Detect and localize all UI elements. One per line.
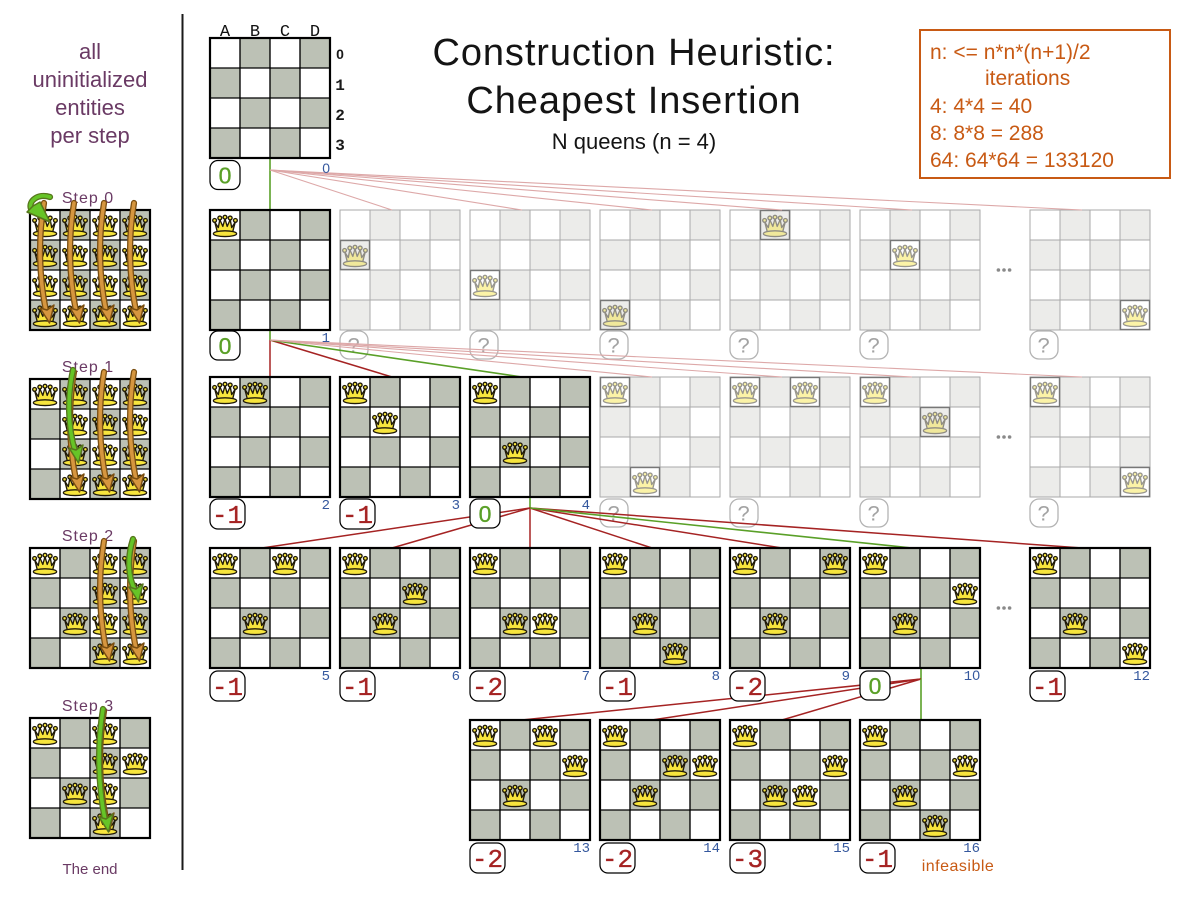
svg-text:entities: entities [55, 95, 125, 120]
svg-text:N queens (n = 4): N queens (n = 4) [552, 129, 716, 154]
svg-text:0: 0 [479, 501, 492, 527]
svg-text:infeasible: infeasible [922, 858, 995, 875]
svg-text:-1: -1 [342, 501, 373, 531]
svg-text:3: 3 [452, 498, 460, 514]
svg-text:iterations: iterations [985, 67, 1070, 90]
svg-text:-1: -1 [1032, 673, 1063, 703]
svg-text:?: ? [737, 335, 750, 360]
svg-text:?: ? [347, 335, 360, 360]
svg-text:?: ? [1037, 335, 1050, 360]
svg-text:-1: -1 [212, 673, 243, 703]
svg-text:8: 8 [712, 669, 720, 685]
svg-text:16: 16 [963, 841, 980, 857]
svg-text:0: 0 [869, 673, 882, 699]
svg-text:uninitialized: uninitialized [33, 67, 148, 92]
svg-text:per step: per step [50, 123, 130, 148]
svg-text:B: B [250, 23, 260, 42]
svg-text:-2: -2 [472, 845, 503, 875]
svg-text:4: 4*4 = 40: 4: 4*4 = 40 [930, 95, 1032, 118]
svg-text:4: 4 [582, 498, 590, 514]
svg-text:2: 2 [322, 498, 330, 514]
svg-text:15: 15 [833, 841, 850, 857]
svg-text:64: 64*64 = 133120: 64: 64*64 = 133120 [930, 149, 1114, 172]
svg-text:-3: -3 [732, 845, 763, 875]
svg-text:?: ? [867, 335, 880, 360]
svg-text:5: 5 [322, 669, 330, 685]
svg-text:0: 0 [219, 333, 232, 359]
svg-text:-1: -1 [342, 673, 373, 703]
svg-text:-1: -1 [862, 845, 893, 875]
svg-text:12: 12 [1133, 669, 1150, 685]
svg-text:-1: -1 [212, 501, 243, 531]
svg-text:Construction Heuristic:: Construction Heuristic: [433, 32, 836, 74]
svg-text:-2: -2 [602, 845, 633, 875]
svg-text:0: 0 [322, 160, 330, 176]
svg-text:0: 0 [336, 46, 344, 62]
svg-text:1: 1 [335, 77, 345, 95]
svg-text:?: ? [1037, 503, 1050, 528]
svg-text:9: 9 [842, 669, 850, 685]
svg-text:-2: -2 [472, 673, 503, 703]
svg-text:C: C [280, 23, 290, 42]
svg-text:13: 13 [573, 841, 590, 857]
svg-text:Cheapest Insertion: Cheapest Insertion [466, 80, 801, 122]
svg-text:D: D [310, 23, 320, 42]
svg-text:6: 6 [452, 669, 460, 685]
svg-text:0: 0 [219, 163, 232, 189]
svg-text:2: 2 [335, 107, 345, 125]
svg-text:The end: The end [62, 861, 117, 878]
svg-text:?: ? [867, 503, 880, 528]
svg-text:7: 7 [582, 669, 590, 685]
svg-text:1: 1 [322, 331, 330, 347]
svg-text:A: A [220, 23, 231, 42]
svg-text:-1: -1 [602, 673, 633, 703]
svg-text:14: 14 [703, 841, 720, 857]
svg-text:8: 8*8 = 288: 8: 8*8 = 288 [930, 122, 1044, 145]
svg-text:3: 3 [335, 137, 345, 155]
svg-text:-2: -2 [732, 673, 763, 703]
svg-text:n: <= n*n*(n+1)/2: n: <= n*n*(n+1)/2 [930, 41, 1091, 64]
svg-text:all: all [79, 39, 101, 64]
svg-text:10: 10 [964, 667, 980, 685]
